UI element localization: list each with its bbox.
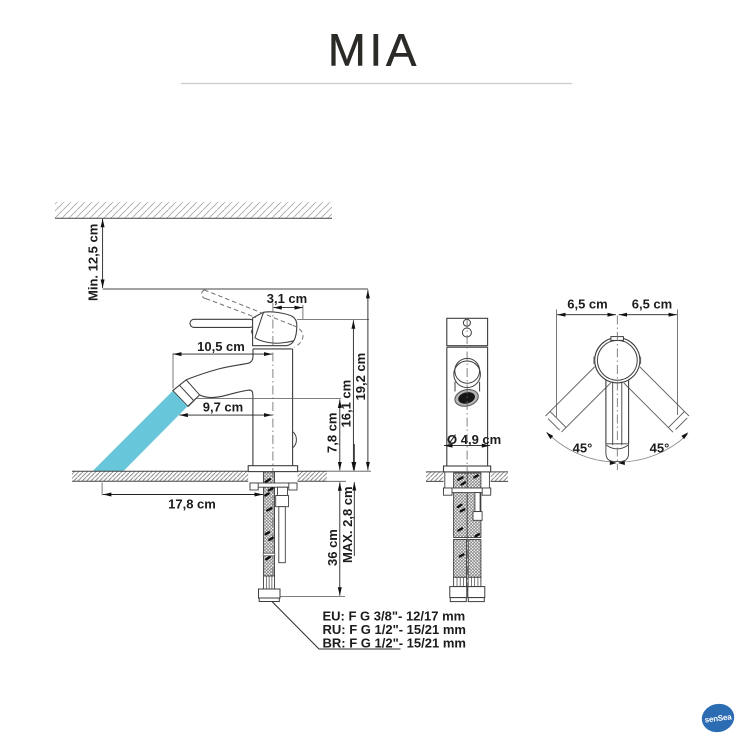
svg-text:6,5 cm: 6,5 cm — [632, 297, 672, 312]
svg-text:17,8 cm: 17,8 cm — [168, 497, 216, 512]
svg-text:16,1 cm: 16,1 cm — [339, 380, 354, 428]
svg-text:9,7 cm: 9,7 cm — [203, 400, 243, 415]
svg-text:MIA: MIA — [328, 25, 420, 76]
svg-text:BR: F G 1/2"- 15/21 mm: BR: F G 1/2"- 15/21 mm — [323, 636, 466, 651]
svg-text:45°: 45° — [650, 441, 670, 456]
svg-text:10,5 cm: 10,5 cm — [197, 339, 245, 354]
svg-text:19,2 cm: 19,2 cm — [353, 353, 368, 401]
svg-text:36 cm: 36 cm — [325, 529, 340, 566]
svg-text:6,5 cm: 6,5 cm — [567, 297, 607, 312]
svg-text:Ø 4,9 cm: Ø 4,9 cm — [447, 432, 501, 447]
svg-text:3,1 cm: 3,1 cm — [267, 291, 307, 306]
svg-text:MAX. 2,8 cm: MAX. 2,8 cm — [340, 486, 355, 563]
svg-text:45°: 45° — [573, 441, 593, 456]
svg-text:Min. 12,5 cm: Min. 12,5 cm — [86, 224, 101, 301]
svg-text:7,8 cm: 7,8 cm — [325, 413, 340, 453]
